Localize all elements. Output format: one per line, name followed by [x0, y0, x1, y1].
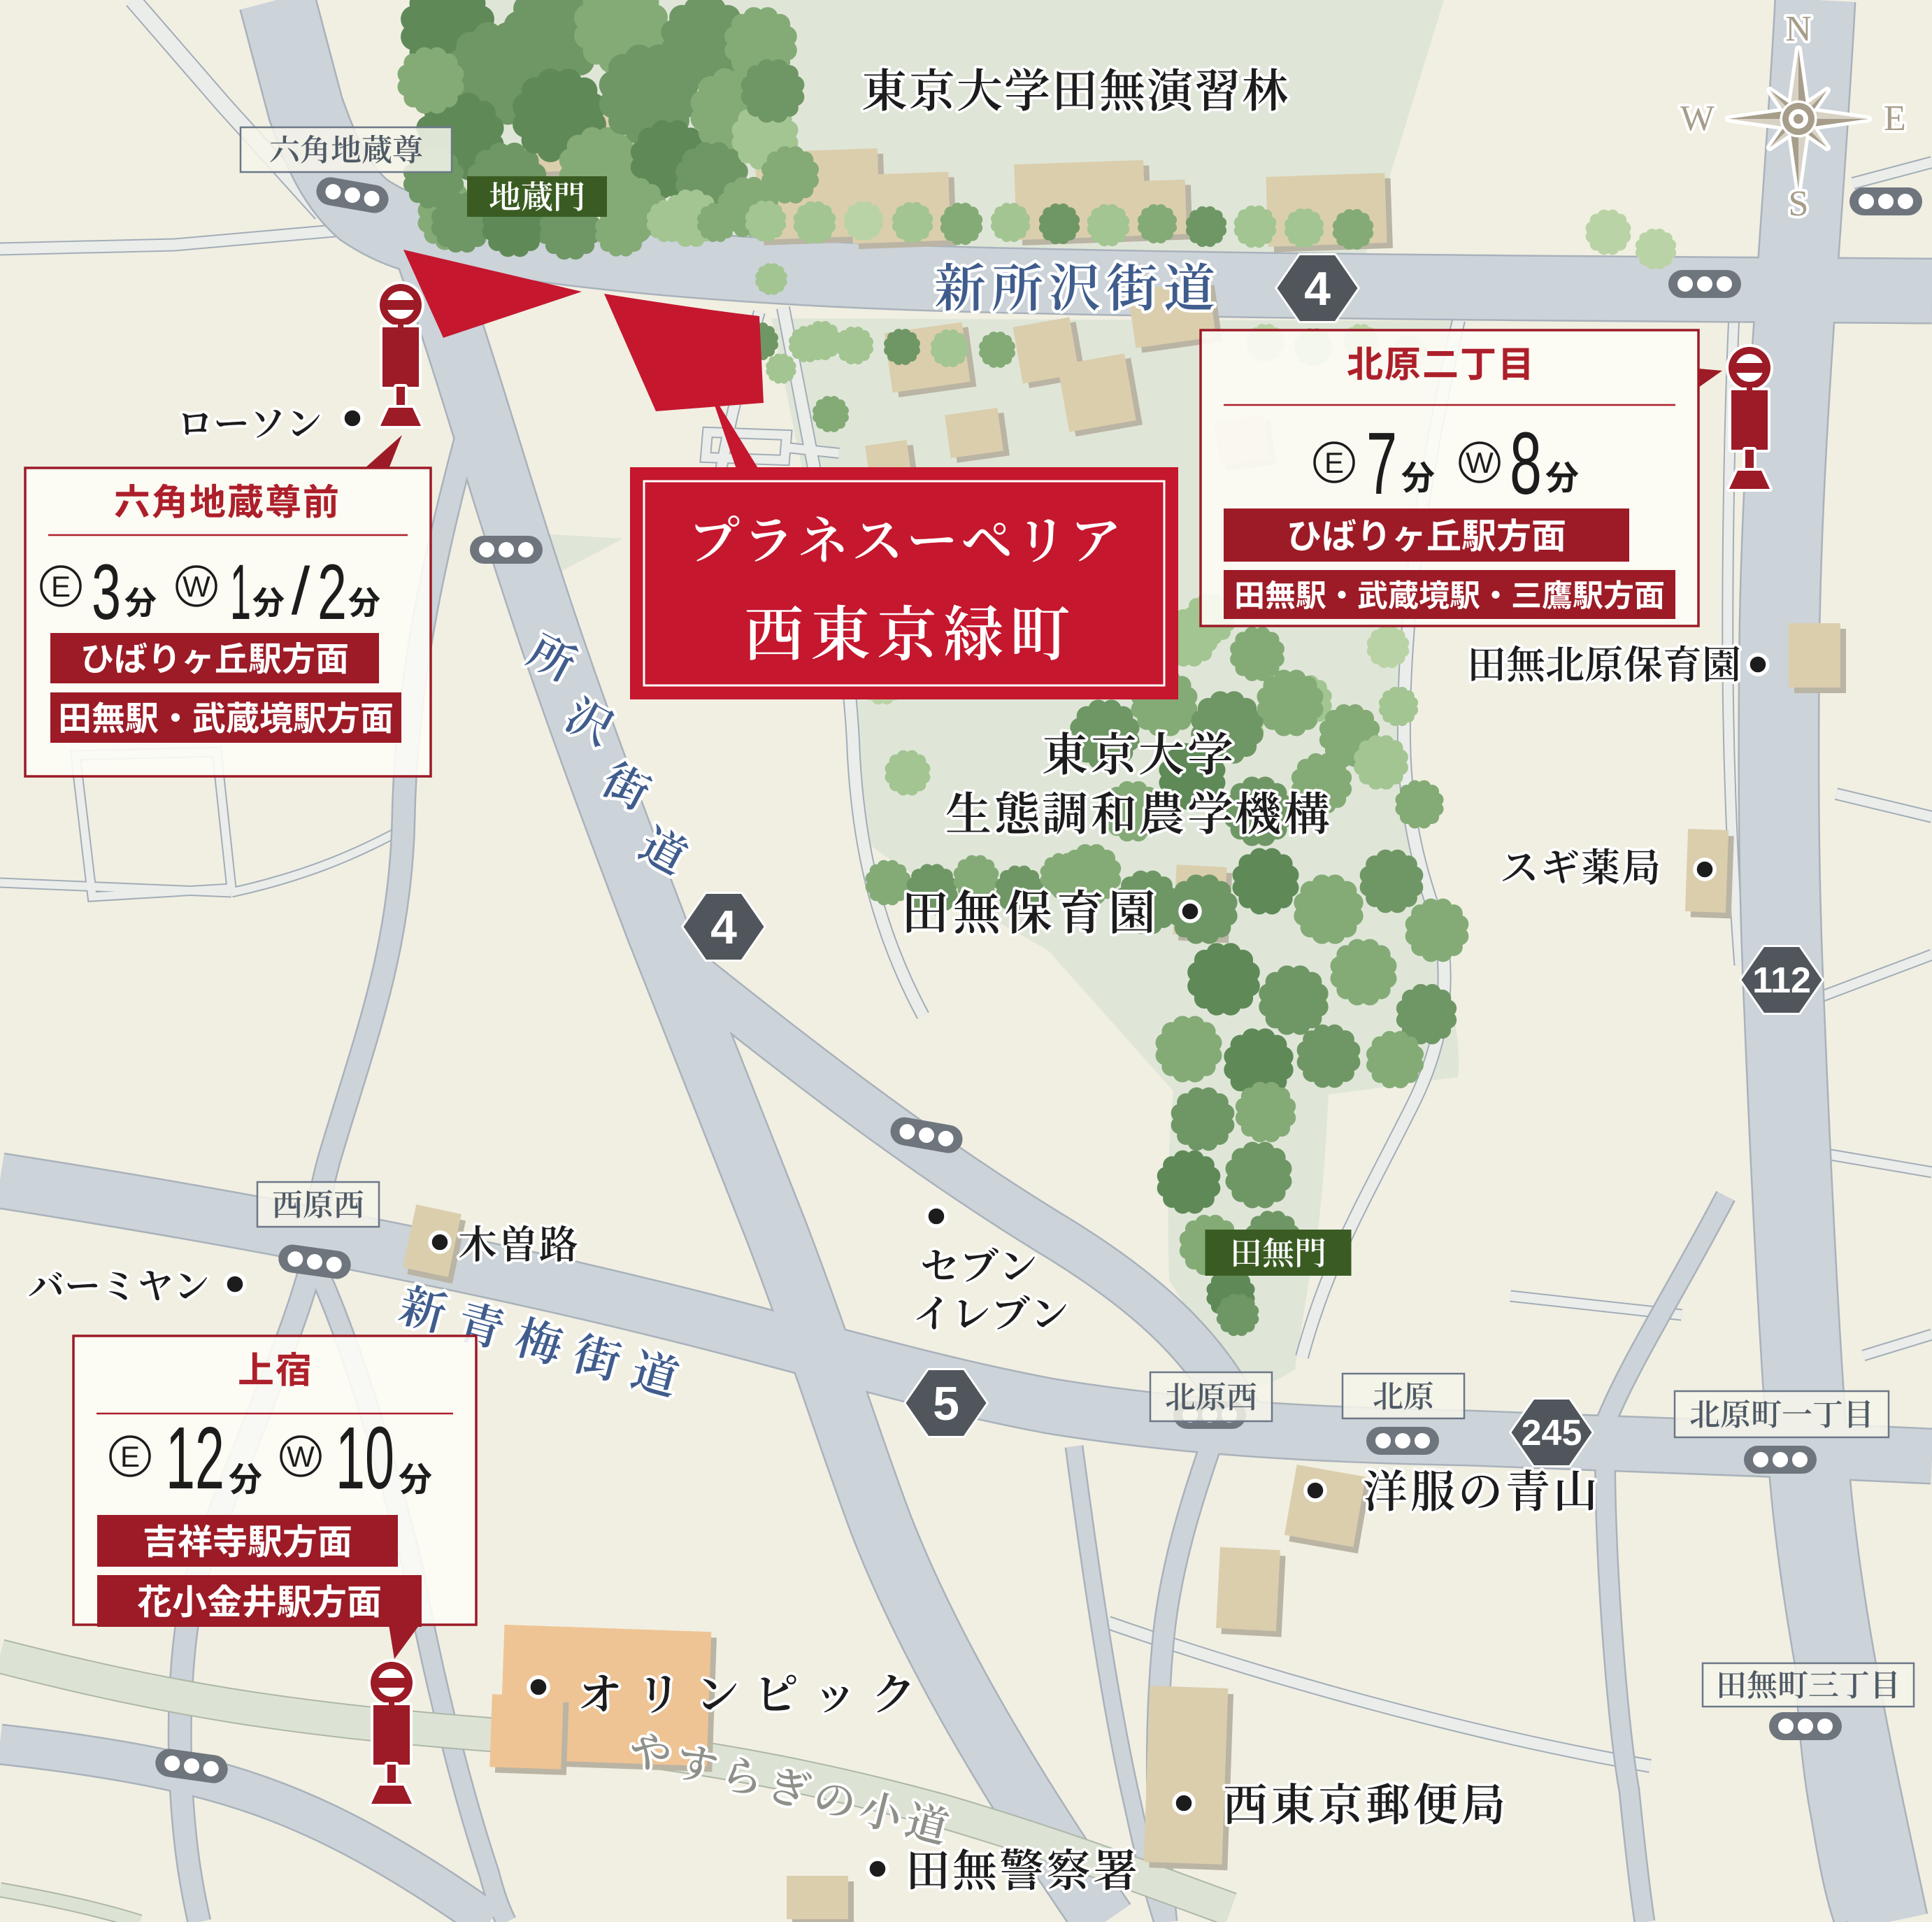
svg-text:W: W — [287, 1440, 315, 1473]
svg-text:12: 12 — [166, 1409, 224, 1507]
svg-text:E: E — [120, 1440, 140, 1473]
svg-text:5: 5 — [933, 1377, 959, 1430]
svg-text:3: 3 — [92, 548, 121, 636]
svg-text:112: 112 — [1752, 960, 1811, 1001]
svg-text:N: N — [1785, 9, 1812, 49]
svg-text:W: W — [183, 570, 210, 603]
svg-text:2: 2 — [317, 548, 347, 636]
svg-text:W: W — [1680, 99, 1715, 138]
svg-text:W: W — [1466, 446, 1494, 479]
svg-text:10: 10 — [336, 1409, 394, 1507]
svg-text:7: 7 — [1366, 414, 1397, 513]
svg-text:245: 245 — [1522, 1413, 1582, 1453]
svg-text:/: / — [292, 554, 310, 629]
svg-text:4: 4 — [710, 901, 737, 954]
svg-text:E: E — [1324, 446, 1344, 479]
svg-text:E: E — [1884, 99, 1906, 138]
svg-text:8: 8 — [1510, 414, 1542, 513]
svg-text:E: E — [51, 570, 71, 603]
svg-text:4: 4 — [1304, 262, 1331, 315]
svg-text:S: S — [1789, 184, 1809, 224]
svg-text:1: 1 — [230, 548, 251, 636]
